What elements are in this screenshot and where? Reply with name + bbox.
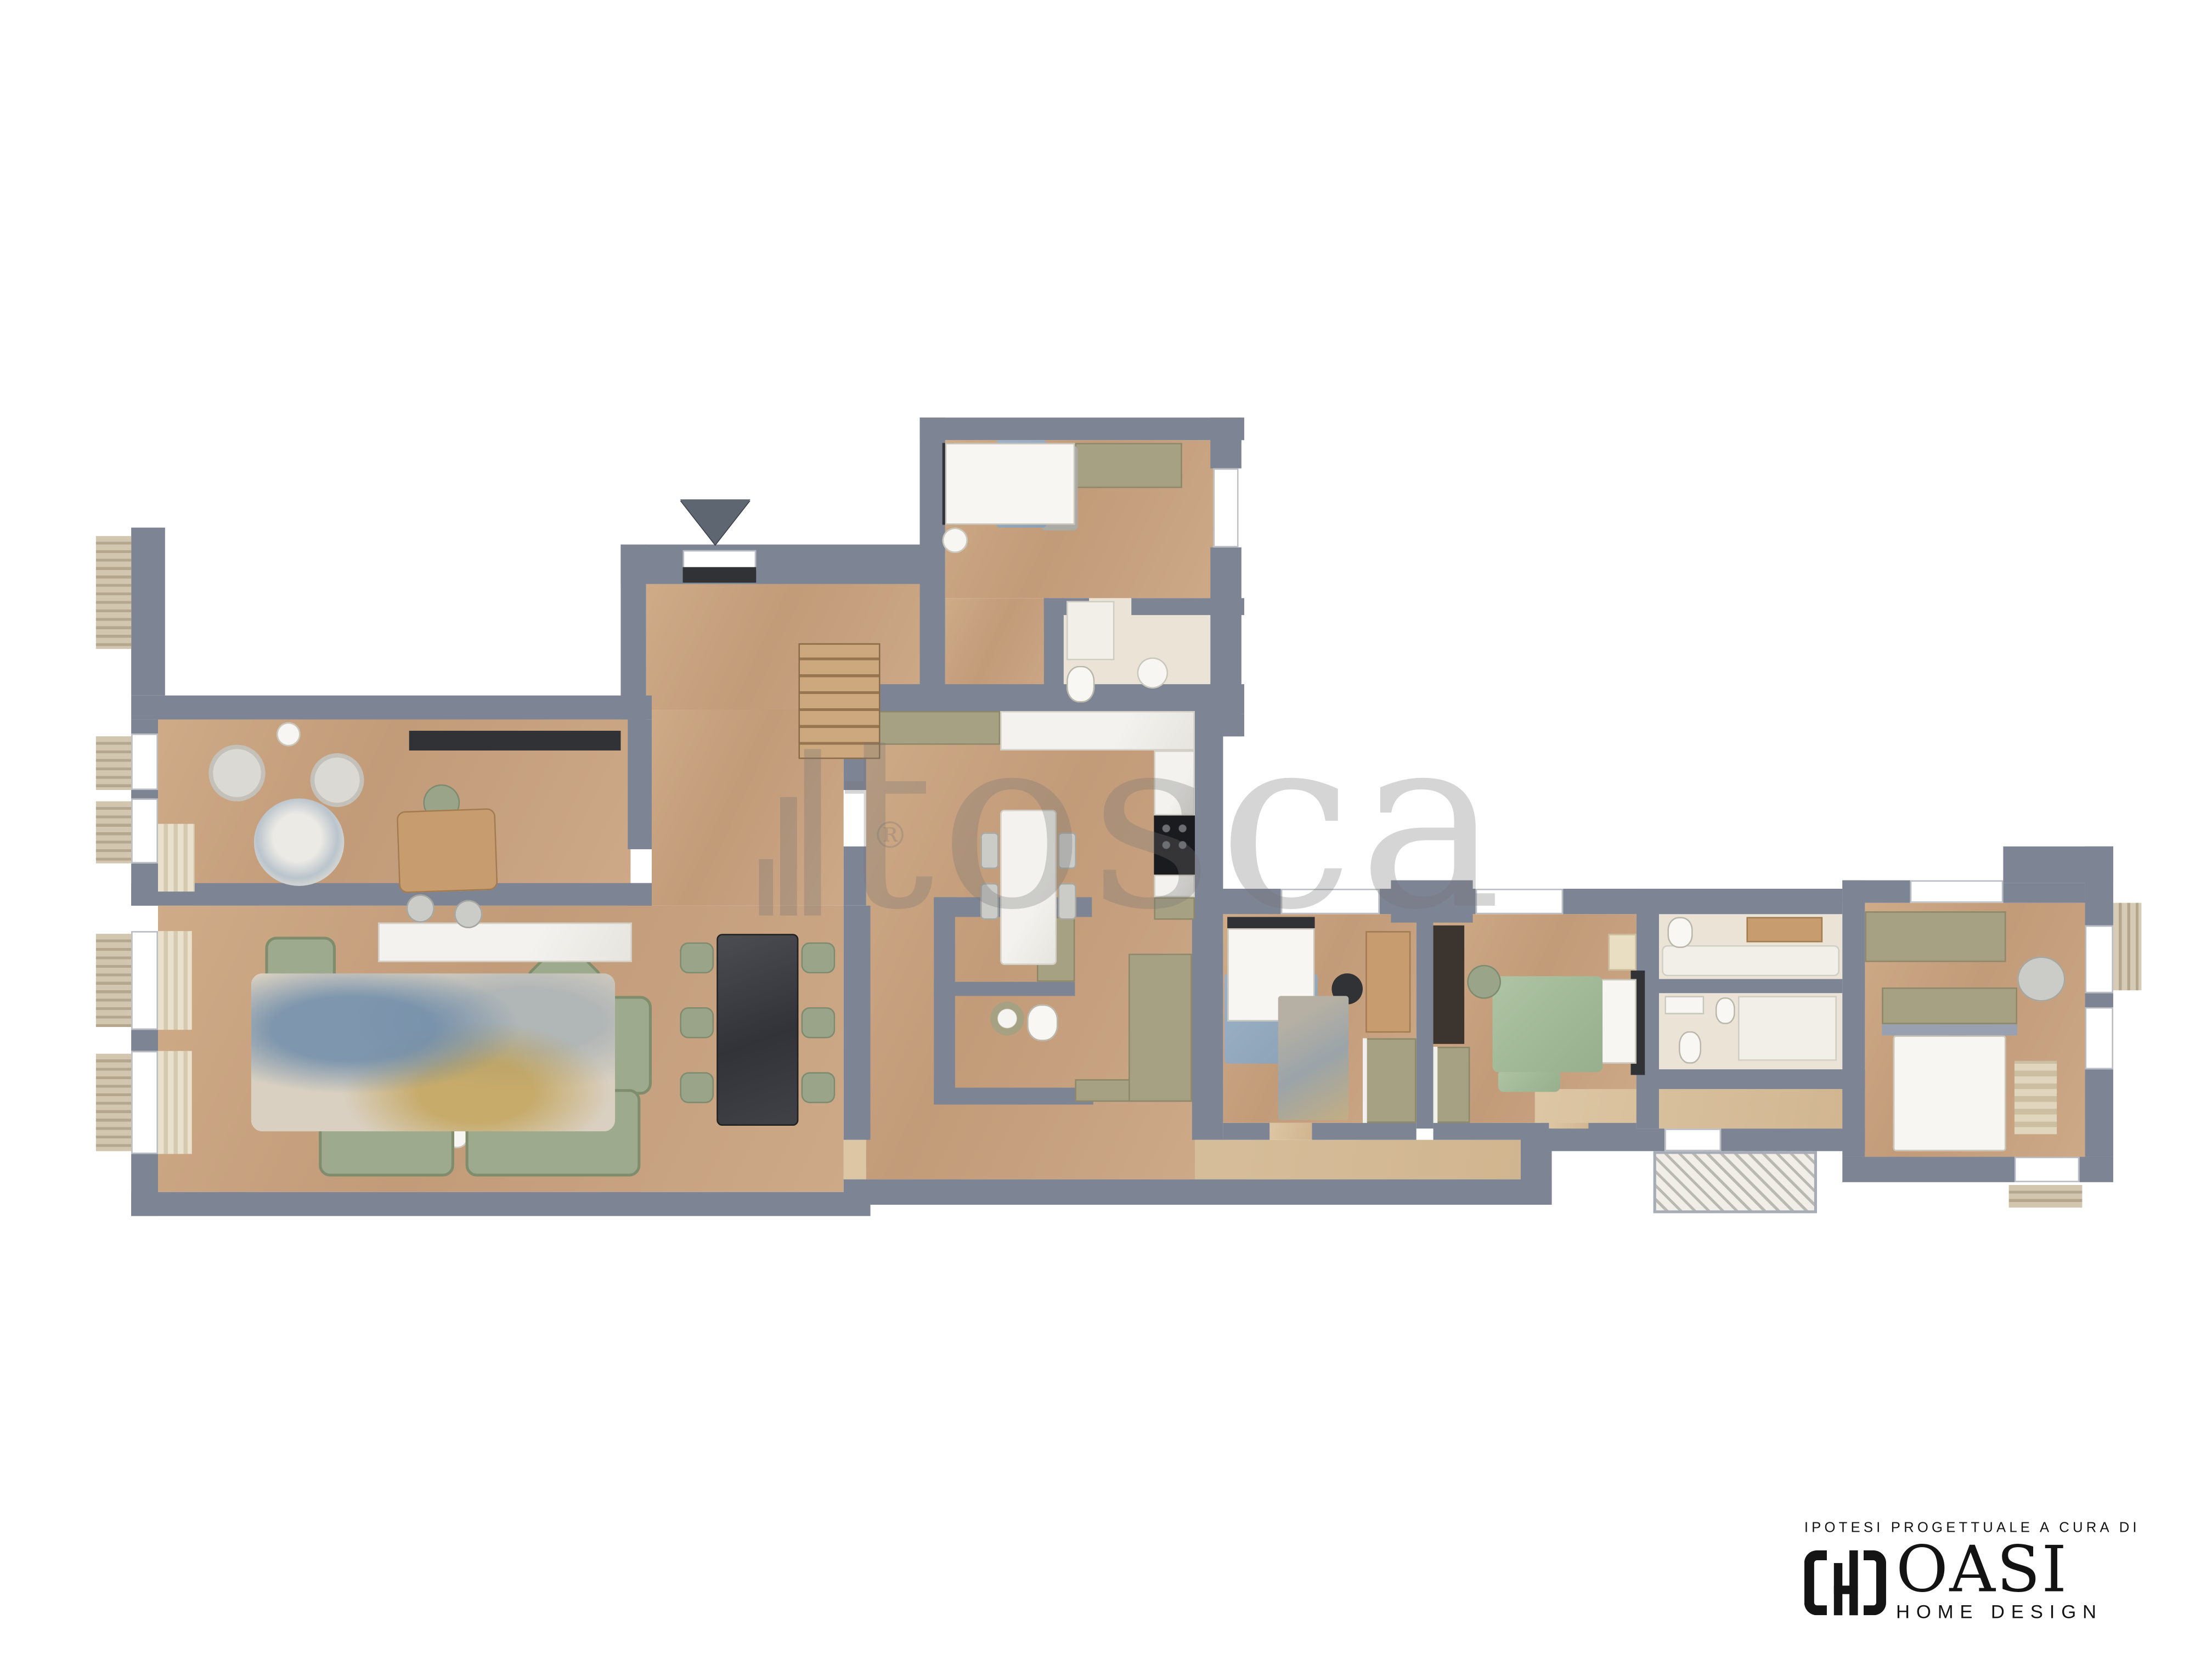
dining-chair-1	[680, 943, 714, 974]
nightstand-bedroom3	[1608, 934, 1636, 970]
wall-study-right-a	[628, 719, 652, 849]
wall-stub-topleft	[131, 528, 165, 696]
wall-master-left	[1842, 881, 1865, 1157]
wall-master-top-c	[2003, 883, 2085, 903]
window-living-2	[131, 1051, 158, 1154]
shelf-study	[409, 731, 621, 751]
brand-name: OASI	[1896, 1543, 2103, 1597]
wall-suite-right-b	[1210, 548, 1242, 737]
window-living-1	[131, 931, 158, 1030]
shutter-living-1	[96, 934, 131, 1027]
wall-bed2-bottom-b	[1312, 1123, 1416, 1140]
window-study-1	[131, 733, 158, 790]
window-master-right-2	[2085, 1007, 2113, 1069]
wall-corridor2-bottom-b	[1721, 1128, 1865, 1151]
rug-round-study	[254, 798, 345, 885]
wall-study-bottom	[131, 883, 652, 906]
island-stool-2	[980, 883, 998, 920]
bath2-toilet	[1027, 1005, 1058, 1041]
wall-bath-divider	[1637, 979, 1842, 994]
cooktop	[1154, 815, 1195, 874]
chair-bedroom3	[1467, 965, 1501, 999]
wardrobe-bedroom1	[1075, 443, 1182, 488]
curtain-living-2	[158, 1051, 192, 1154]
window-study-2	[131, 798, 158, 863]
door-bedroom2	[1269, 1123, 1312, 1140]
window-bedroom3	[1476, 889, 1563, 914]
stairs-entry	[798, 644, 880, 759]
bath4-cabinet	[1738, 996, 1837, 1060]
wardrobe-bedroom3	[1434, 1047, 1470, 1123]
rug-bedroom2	[1278, 996, 1349, 1120]
guest-chair-2	[454, 900, 482, 928]
bath3-vanity	[1746, 917, 1822, 942]
side-table-study	[276, 723, 301, 747]
headboard-master	[1882, 1024, 2017, 1036]
wall-closet-left	[934, 897, 955, 1104]
wall-left-d	[131, 1030, 158, 1051]
curtain-living-1	[158, 931, 192, 1030]
lounge-chair-1	[209, 745, 266, 802]
wall-wing-top-b	[1380, 889, 1476, 914]
wall-master-right-b	[2085, 993, 2113, 1007]
headboard-cabinet-master	[1882, 988, 2017, 1024]
bath1-sink	[1137, 657, 1169, 689]
desk-bedroom2	[1365, 931, 1410, 1032]
pouf-master	[2017, 956, 2065, 1001]
wall-left-b	[131, 790, 158, 798]
oasi-logo-icon	[1804, 1550, 1886, 1615]
wall-passage-right-b	[844, 847, 866, 906]
wall-master-top-b	[2003, 847, 2113, 883]
guest-chair-1	[407, 894, 435, 922]
tv-console	[378, 923, 632, 962]
shutter-study-1	[96, 736, 131, 790]
bed1-mattress	[945, 443, 1075, 524]
island-stool-4	[1058, 883, 1076, 920]
bath1-toilet	[1066, 666, 1094, 703]
wall-wing-top-c	[1563, 889, 1842, 914]
desk-study	[397, 808, 498, 893]
bed1-side-table	[943, 528, 968, 553]
dining-chair-4	[802, 943, 836, 974]
bath4-toilet	[1679, 1031, 1701, 1064]
wall-bed2-bottom-a	[1223, 1123, 1269, 1140]
dining-chair-3	[680, 1072, 714, 1103]
bed3-drape	[1498, 1069, 1560, 1092]
door-entry-leaf	[683, 567, 757, 583]
kitchen-counter-right-2	[1154, 874, 1195, 897]
bed3-mattress	[1600, 979, 1637, 1064]
window-master-bottom	[2015, 1157, 2079, 1182]
dining-table	[716, 934, 798, 1126]
rug-living	[251, 973, 615, 1131]
kitchen-counter-right	[1154, 751, 1195, 815]
wall-bedroom2-left	[1192, 889, 1223, 1140]
door-balcony	[1664, 1128, 1721, 1151]
wardrobe-column	[1128, 953, 1192, 1102]
floor-plan-page: tosca ® IPOTESI PROGETTUALE A CURA DI OA…	[0, 0, 2212, 1659]
curtain-study	[158, 824, 195, 891]
credit-block: IPOTESI PROGETTUALE A CURA DI OASI HOME …	[1804, 1521, 2140, 1623]
bath1-shower	[1066, 601, 1114, 660]
wall-study-top	[131, 696, 652, 720]
wall-left-a	[131, 719, 158, 733]
dining-chair-6	[802, 1072, 836, 1103]
wall-study-right-b	[628, 883, 652, 906]
window-bedroom1	[1213, 469, 1238, 548]
wall-closet-bottom	[934, 1088, 1093, 1105]
entrance-arrow-icon	[680, 499, 751, 544]
lounge-chair-2	[311, 753, 364, 807]
island-stool-1	[980, 832, 998, 869]
kitchen-island	[1000, 810, 1057, 965]
shutter-master-bottom	[2009, 1185, 2083, 1207]
window-bedroom2	[1281, 889, 1380, 914]
wardrobe-bedroom2	[1363, 1039, 1417, 1123]
wall-corridor-bottom	[844, 1180, 1552, 1205]
floor-plan-stage: tosca ® IPOTESI PROGETTUALE A CURA DI OA…	[0, 0, 2212, 1659]
wall-master-right-c	[2085, 1069, 2113, 1156]
bath4-bidet	[1716, 997, 1735, 1024]
bed2-headboard	[1227, 917, 1314, 928]
brand-subtitle: HOME DESIGN	[1896, 1601, 2103, 1623]
wall-entry-top	[620, 545, 931, 584]
wall-master-bottom-a	[1842, 1157, 2015, 1182]
shutter-study-2	[96, 802, 131, 864]
balcony-hatch	[1654, 1151, 1817, 1213]
wall-living-right	[844, 906, 871, 1140]
wall-master-bottom-b	[2079, 1157, 2113, 1182]
window-master-right-1	[2085, 926, 2113, 993]
bath3-toilet	[1667, 917, 1692, 948]
wall-bath-bottom	[1637, 1069, 1865, 1089]
desk-bedroom3	[1434, 926, 1465, 1044]
dining-chair-2	[680, 1007, 714, 1039]
wall-bottom-left	[131, 1192, 870, 1216]
shutter-topleft	[96, 536, 131, 649]
bath3-tub	[1662, 945, 1839, 977]
rug-master	[2015, 1061, 2057, 1135]
kitchen-tall-cabinet	[1154, 897, 1195, 919]
bath4-sink	[1664, 996, 1704, 1014]
wall-bed2-bed3	[1417, 914, 1434, 1128]
island-stool-3	[1058, 832, 1076, 869]
bed-master	[1893, 1035, 2006, 1151]
wall-left-e	[131, 1154, 158, 1216]
shutter-living-2	[96, 1054, 131, 1151]
dining-chair-5	[802, 1007, 836, 1039]
bed3-duvet	[1493, 976, 1603, 1072]
wardrobe-master	[1865, 911, 2006, 962]
kitchen-counter-top	[1000, 711, 1195, 751]
wall-suite-top	[920, 417, 1244, 440]
wall-suite-left	[920, 417, 945, 736]
bath2-sink	[990, 1002, 1024, 1036]
shutter-master-right	[2113, 903, 2141, 990]
window-master-top	[1910, 881, 2004, 903]
